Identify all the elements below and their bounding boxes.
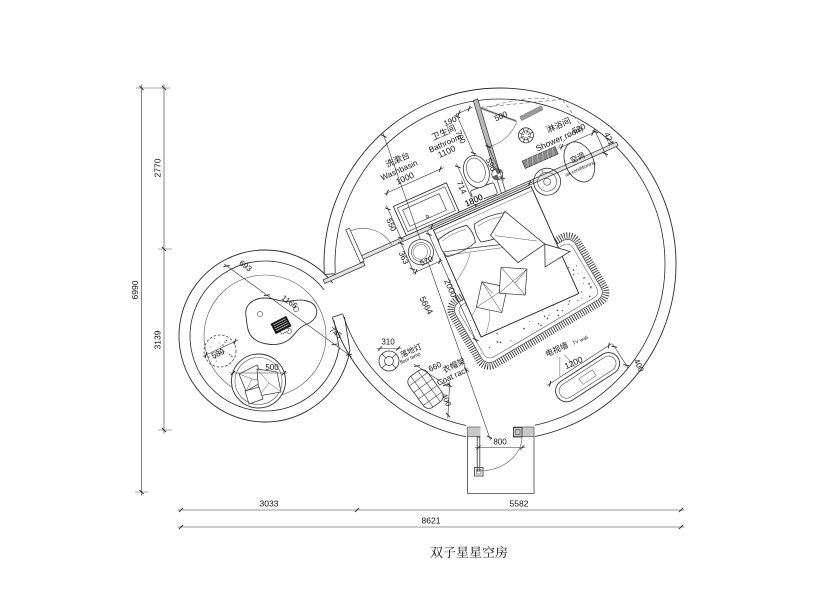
svg-text:6990: 6990	[130, 280, 140, 299]
svg-text:800: 800	[493, 438, 507, 447]
svg-text:310: 310	[381, 338, 395, 347]
svg-text:8621: 8621	[422, 516, 441, 526]
svg-text:3033: 3033	[260, 499, 279, 509]
svg-text:2770: 2770	[153, 158, 163, 177]
svg-text:500: 500	[265, 363, 279, 372]
svg-text:5582: 5582	[510, 499, 529, 509]
svg-text:3139: 3139	[153, 330, 163, 349]
